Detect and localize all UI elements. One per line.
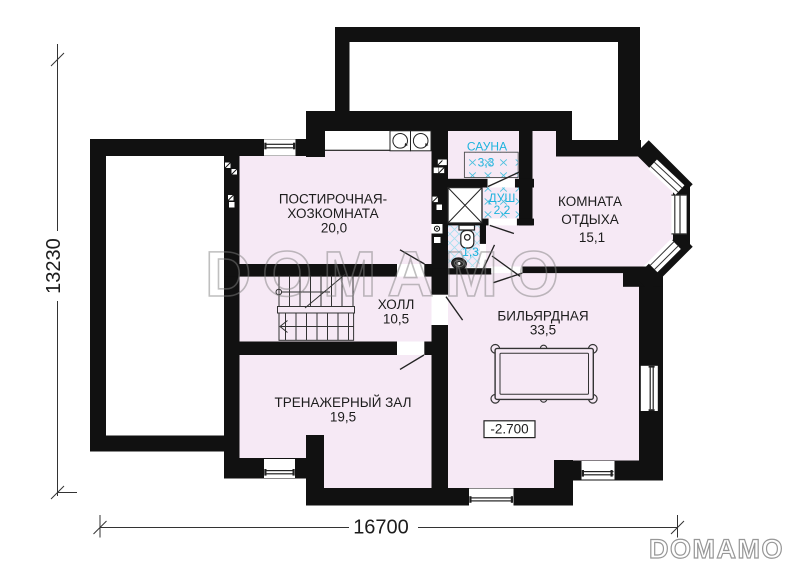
svg-text:10,5: 10,5 xyxy=(383,312,409,327)
svg-text:2,2: 2,2 xyxy=(494,203,511,217)
svg-text:ХОЗКОМНАТА: ХОЗКОМНАТА xyxy=(287,206,378,221)
svg-text:КОМНАТА: КОМНАТА xyxy=(558,194,622,209)
svg-text:15,1: 15,1 xyxy=(579,230,605,245)
svg-text:1,3: 1,3 xyxy=(462,245,479,259)
svg-text:ПОСТИРОЧНАЯ-: ПОСТИРОЧНАЯ- xyxy=(279,192,387,207)
svg-text:16700: 16700 xyxy=(353,517,409,539)
svg-text:DOMAMO: DOMAMO xyxy=(649,534,784,564)
svg-text:13230: 13230 xyxy=(43,238,65,294)
svg-text:ОТДЫХА: ОТДЫХА xyxy=(561,212,618,227)
svg-text:20,0: 20,0 xyxy=(321,221,347,236)
svg-text:19,5: 19,5 xyxy=(330,410,356,425)
svg-text:33,5: 33,5 xyxy=(530,323,556,338)
svg-text:3,3: 3,3 xyxy=(478,156,495,170)
svg-text:БИЛЬЯРДНАЯ: БИЛЬЯРДНАЯ xyxy=(497,309,588,324)
svg-text:ТРЕНАЖЕРНЫЙ ЗАЛ: ТРЕНАЖЕРНЫЙ ЗАЛ xyxy=(275,395,412,410)
svg-text:САУНА: САУНА xyxy=(467,140,507,154)
svg-text:ХОЛЛ: ХОЛЛ xyxy=(378,297,415,312)
svg-text:-2.700: -2.700 xyxy=(490,422,528,437)
